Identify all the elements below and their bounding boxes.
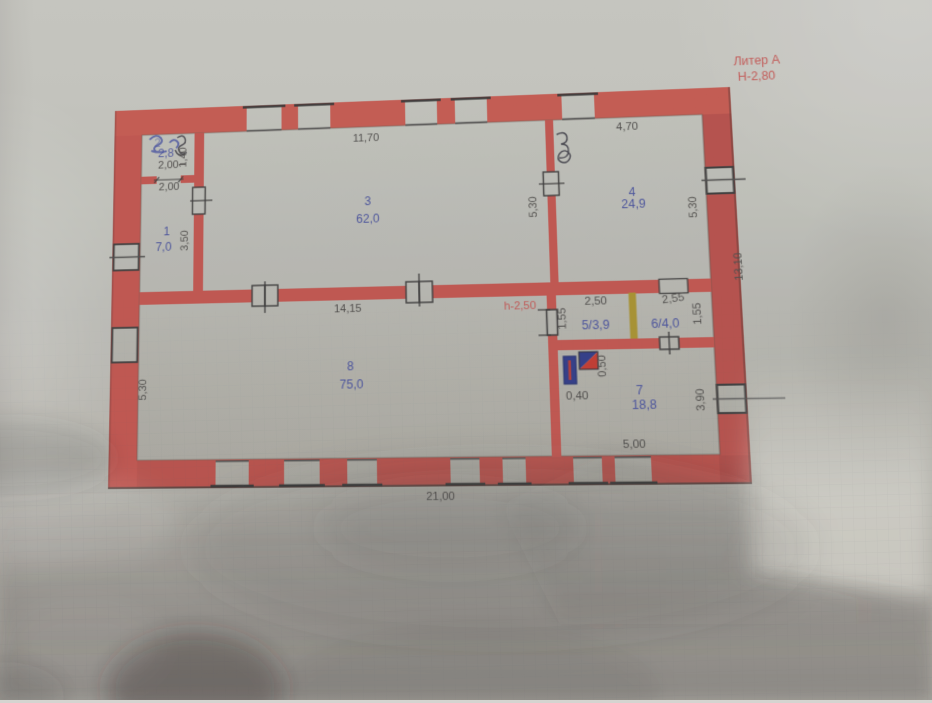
svg-text:62,0: 62,0: [356, 213, 379, 226]
svg-text:4,70: 4,70: [616, 121, 639, 133]
svg-text:6/4,0: 6/4,0: [651, 317, 680, 331]
svg-text:1,40: 1,40: [178, 147, 190, 168]
svg-text:5,30: 5,30: [137, 379, 149, 401]
svg-text:2,8: 2,8: [158, 148, 174, 161]
svg-text:Литер А: Литер А: [733, 54, 781, 69]
svg-text:21,00: 21,00: [426, 491, 455, 504]
svg-text:0,50: 0,50: [596, 354, 609, 377]
svg-text:5,30: 5,30: [527, 196, 540, 218]
svg-text:18,8: 18,8: [632, 399, 657, 413]
svg-text:Н-2,80: Н-2,80: [737, 70, 775, 84]
svg-text:3,50: 3,50: [179, 230, 191, 251]
svg-text:11,70: 11,70: [353, 133, 380, 145]
svg-text:5,30: 5,30: [687, 196, 701, 218]
svg-text:75,0: 75,0: [340, 378, 364, 392]
svg-text:5/3,9: 5/3,9: [581, 319, 609, 333]
svg-text:3,90: 3,90: [694, 388, 708, 411]
svg-text:2,50: 2,50: [584, 296, 607, 309]
svg-text:14,15: 14,15: [334, 303, 362, 315]
svg-text:8: 8: [347, 360, 354, 373]
svg-text:h-2,50: h-2,50: [504, 300, 537, 313]
svg-text:1,55: 1,55: [691, 302, 705, 325]
svg-text:5,00: 5,00: [623, 439, 647, 452]
svg-text:0,40: 0,40: [566, 390, 589, 403]
svg-text:1,55: 1,55: [556, 307, 569, 329]
svg-text:2,00: 2,00: [159, 182, 180, 194]
svg-text:1: 1: [163, 226, 170, 239]
svg-text:7,0: 7,0: [155, 241, 171, 254]
svg-text:24,9: 24,9: [621, 198, 646, 212]
svg-text:3: 3: [364, 196, 371, 209]
svg-text:7: 7: [636, 384, 644, 398]
svg-text:2,00: 2,00: [158, 160, 179, 172]
svg-text:13,10: 13,10: [732, 252, 746, 281]
